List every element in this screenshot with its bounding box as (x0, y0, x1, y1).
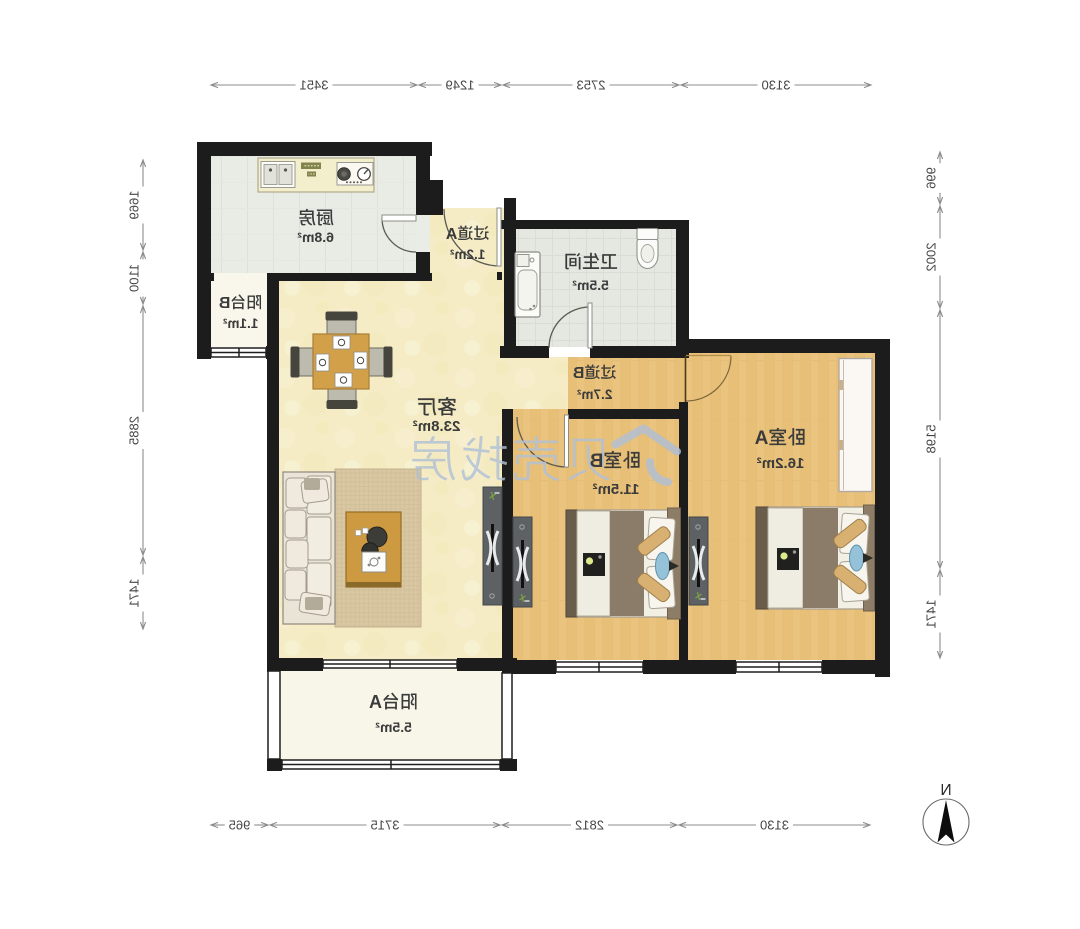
svg-text:A: A (754, 428, 768, 449)
svg-text:23.8m²: 23.8m² (413, 418, 461, 435)
svg-text:2812: 2812 (575, 818, 604, 833)
svg-text:B: B (590, 451, 604, 472)
svg-text:1669: 1669 (126, 191, 141, 220)
svg-text:5198: 5198 (923, 425, 938, 454)
svg-text:965: 965 (229, 818, 251, 833)
svg-text:3130: 3130 (760, 818, 789, 833)
svg-text:3130: 3130 (762, 78, 791, 93)
svg-text:B: B (219, 295, 231, 312)
svg-text:996: 996 (923, 167, 938, 189)
svg-text:1471: 1471 (126, 579, 141, 608)
svg-text:1249: 1249 (446, 78, 475, 93)
svg-text:16.2m²: 16.2m² (757, 455, 805, 472)
svg-text:6.8m²: 6.8m² (297, 229, 334, 245)
svg-text:B: B (573, 365, 585, 382)
svg-text:1100: 1100 (126, 264, 141, 292)
svg-text:1.2m²: 1.2m² (450, 247, 486, 262)
svg-text:11.5m²: 11.5m² (593, 481, 640, 498)
svg-text:2885: 2885 (126, 416, 141, 445)
svg-text:2.7m²: 2.7m² (577, 387, 613, 402)
svg-text:5.5m²: 5.5m² (375, 719, 412, 735)
svg-text:1471: 1471 (923, 600, 938, 629)
svg-text:3715: 3715 (371, 818, 400, 833)
svg-text:3451: 3451 (300, 78, 329, 93)
svg-text:1.1m²: 1.1m² (223, 316, 259, 331)
svg-text:2002: 2002 (923, 243, 938, 272)
svg-text:N: N (940, 782, 951, 799)
svg-text:A: A (369, 692, 382, 712)
svg-text:2753: 2753 (577, 78, 606, 93)
svg-text:5.5m²: 5.5m² (572, 277, 609, 293)
svg-text:A: A (445, 226, 457, 243)
